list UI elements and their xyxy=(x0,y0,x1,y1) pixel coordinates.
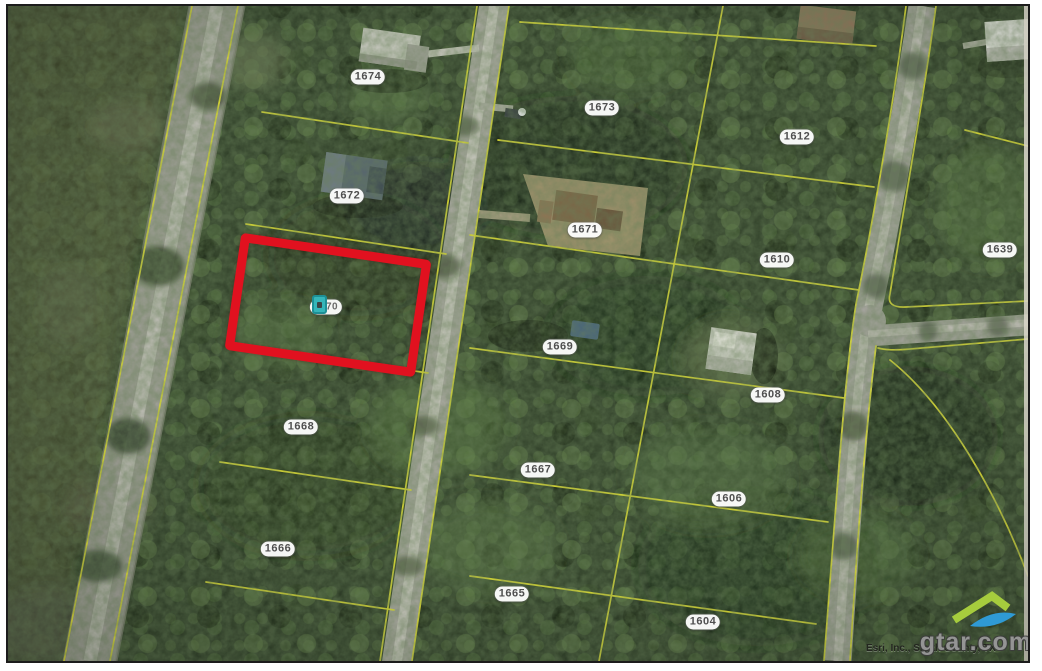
parcel-label: 1610 xyxy=(760,253,794,268)
watermark: gtar.com xyxy=(920,628,1028,657)
parcel-label: 1612 xyxy=(780,130,814,145)
screenshot: 1674 1673 1612 1672 1671 1610 1639 1669 … xyxy=(0,0,1042,671)
selected-feature-marker-icon[interactable] xyxy=(312,295,327,314)
imagery-edge xyxy=(1024,6,1028,661)
parcel-label: 1665 xyxy=(495,587,529,602)
parcel-label: 1674 xyxy=(351,70,385,85)
parcel-label: 1639 xyxy=(983,243,1017,258)
parcel-label: 1666 xyxy=(261,542,295,557)
map-frame: 1674 1673 1612 1672 1671 1610 1639 1669 … xyxy=(6,4,1030,663)
parcel-label: 1608 xyxy=(751,388,785,403)
parcel-label: 1673 xyxy=(585,101,619,116)
parcel-label: 1668 xyxy=(284,420,318,435)
parcel-label: 1606 xyxy=(712,492,746,507)
image-grain xyxy=(8,6,1028,661)
parcel-label: 1669 xyxy=(543,340,577,355)
logo-swoosh xyxy=(970,613,1016,627)
parcel-label: 1671 xyxy=(568,223,602,238)
aerial-map[interactable]: 1674 1673 1612 1672 1671 1610 1639 1669 … xyxy=(8,6,1028,661)
parcel-label: 1672 xyxy=(330,189,364,204)
parcel-label: 1667 xyxy=(521,463,555,478)
aerial-imagery xyxy=(8,6,1028,661)
parcel-label: 1604 xyxy=(686,615,720,630)
